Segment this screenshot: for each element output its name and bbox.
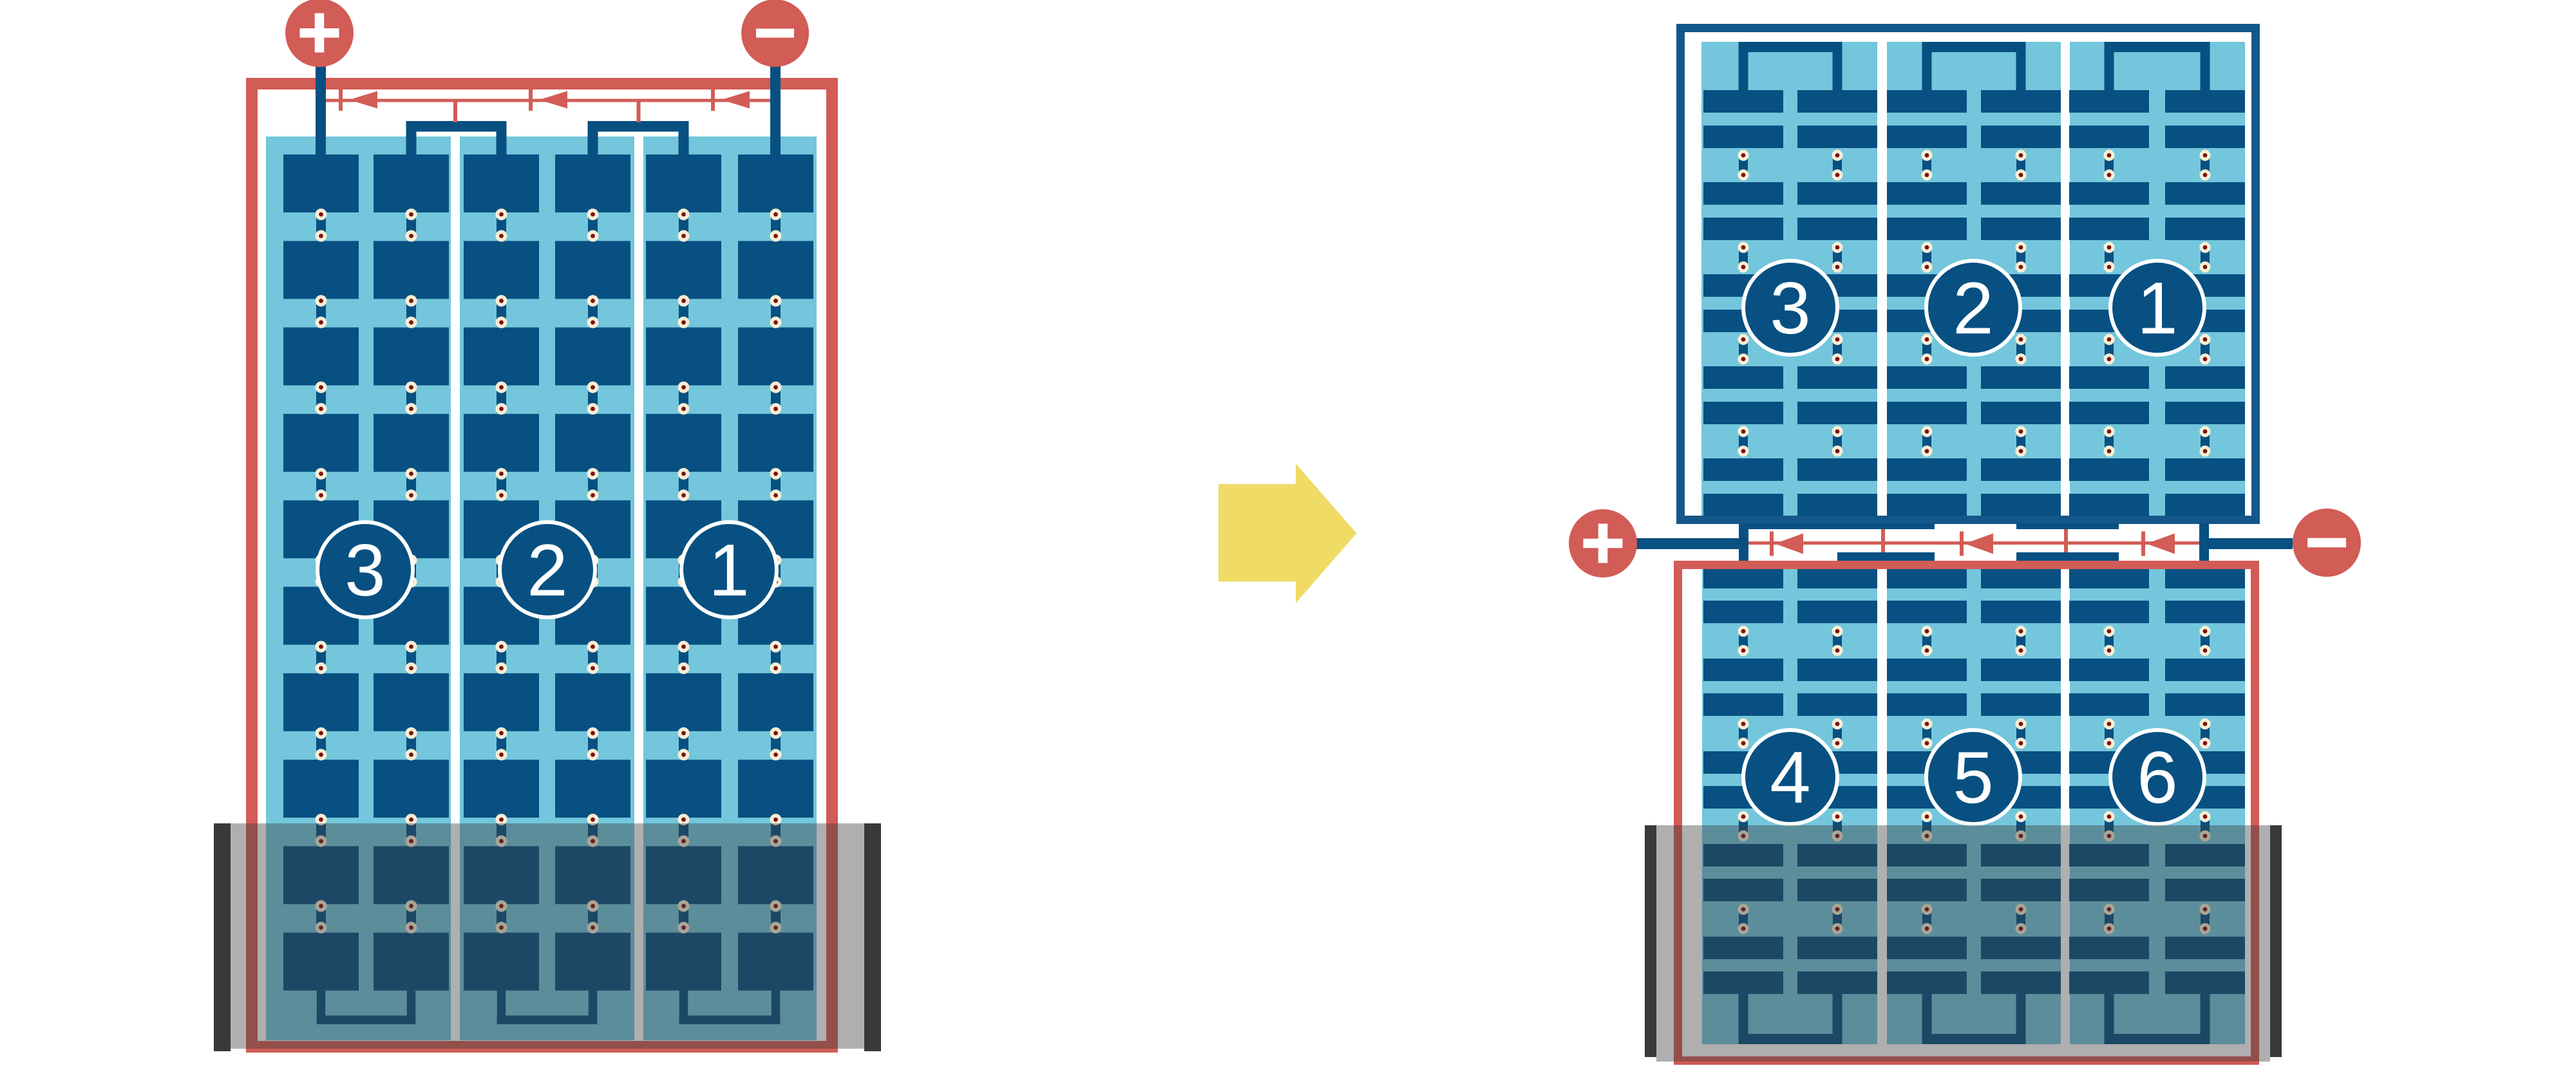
svg-text:4: 4	[1770, 737, 1810, 819]
svg-text:6: 6	[2137, 737, 2177, 819]
svg-text:5: 5	[1953, 737, 1993, 819]
svg-text:1: 1	[2137, 268, 2177, 350]
svg-text:1: 1	[708, 530, 749, 612]
svg-text:3: 3	[1770, 268, 1810, 350]
svg-text:2: 2	[1953, 268, 1993, 350]
svg-text:2: 2	[527, 530, 567, 612]
svg-text:3: 3	[345, 530, 385, 612]
